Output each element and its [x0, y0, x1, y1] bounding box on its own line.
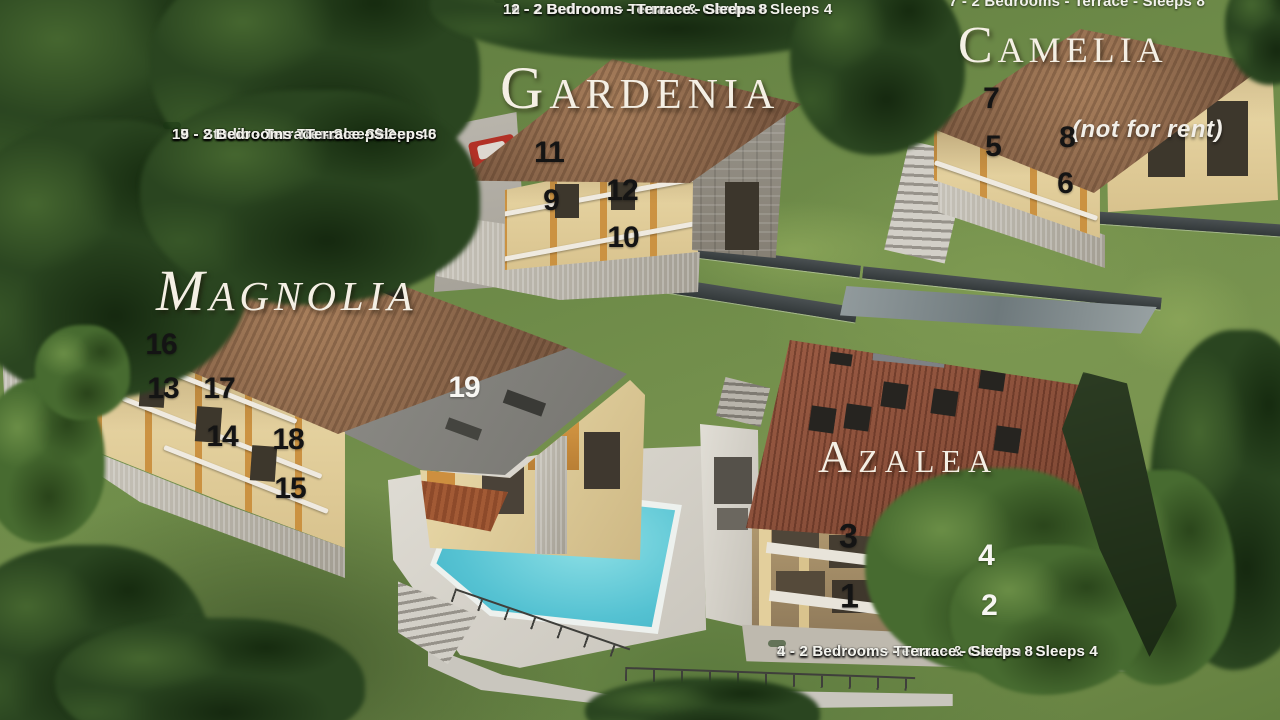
unit-number-marker: 2 [981, 589, 997, 623]
unit-number-marker: 4 [978, 539, 994, 573]
unit-number-marker: 17 [203, 372, 234, 406]
unit-number-marker: 11 [534, 136, 564, 170]
unit-number-marker: 1 [840, 578, 858, 617]
site-plan-photo: 10 - 1 Bedroom - Terrace & Garden - Slee… [0, 0, 1280, 720]
unit-number-marker: 8 [1059, 121, 1075, 155]
unit-number-layer: 11912107586161317141815193142 [0, 0, 1280, 720]
unit-number-marker: 5 [985, 130, 1001, 164]
unit-number-marker: 12 [606, 174, 637, 208]
unit-number-marker: 15 [274, 472, 305, 506]
unit-number-marker: 9 [543, 184, 559, 218]
unit-number-marker: 18 [272, 423, 303, 457]
unit-number-marker: 3 [839, 518, 857, 557]
unit-number-marker: 6 [1057, 167, 1073, 201]
unit-number-marker: 7 [983, 82, 999, 116]
unit-number-marker: 14 [206, 420, 237, 454]
unit-number-marker: 19 [448, 371, 479, 405]
unit-number-marker: 13 [147, 372, 178, 406]
unit-number-marker: 16 [145, 328, 176, 362]
unit-number-marker: 10 [607, 221, 638, 255]
